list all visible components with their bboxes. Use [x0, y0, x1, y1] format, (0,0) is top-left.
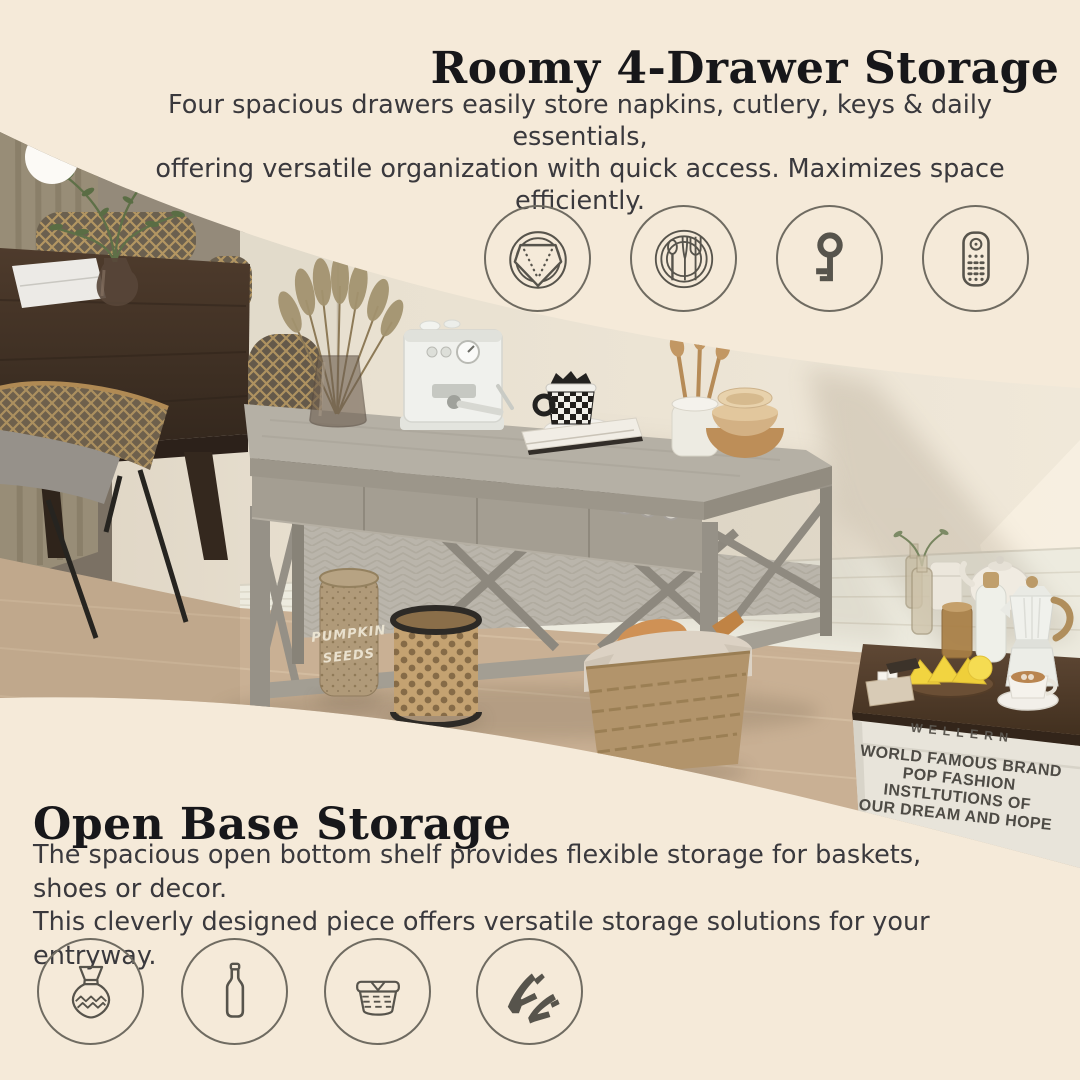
espresso-machine — [400, 320, 512, 430]
seeds-jar: PUMPKIN SEEDS — [311, 569, 387, 696]
top-section-title: Roomy 4-Drawer Storage — [415, 43, 1075, 94]
top-section-description: Four spacious drawers easily store napki… — [110, 89, 1050, 217]
top-description-line1: Four spacious drawers easily store napki… — [110, 89, 1050, 153]
bottom-description-line1: The spacious open bottom shelf provides … — [33, 839, 993, 906]
bottle-feature-badge — [181, 938, 288, 1045]
heels-feature-badge — [476, 938, 583, 1045]
basket-feature-badge — [324, 938, 431, 1045]
top-description-line2: offering versatile organization with qui… — [110, 153, 1050, 217]
product-feature-image: PUMPKIN SEEDS — [0, 0, 1080, 1080]
remote-feature-badge — [922, 205, 1029, 312]
napkin-icon — [501, 222, 575, 296]
vase-feature-badge — [37, 938, 144, 1045]
basket-icon — [341, 955, 415, 1029]
cutlery-feature-badge — [630, 205, 737, 312]
key-icon — [793, 222, 867, 296]
cutlery-icon — [647, 222, 721, 296]
bottle-icon — [198, 955, 272, 1029]
key-feature-badge — [776, 205, 883, 312]
remote-icon — [939, 222, 1013, 296]
heels-icon — [493, 955, 567, 1029]
vase-icon — [54, 955, 128, 1029]
napkin-feature-badge — [484, 205, 591, 312]
stacked-bowls — [706, 388, 784, 458]
deco-circle — [25, 130, 79, 184]
cane-basket — [393, 608, 479, 725]
